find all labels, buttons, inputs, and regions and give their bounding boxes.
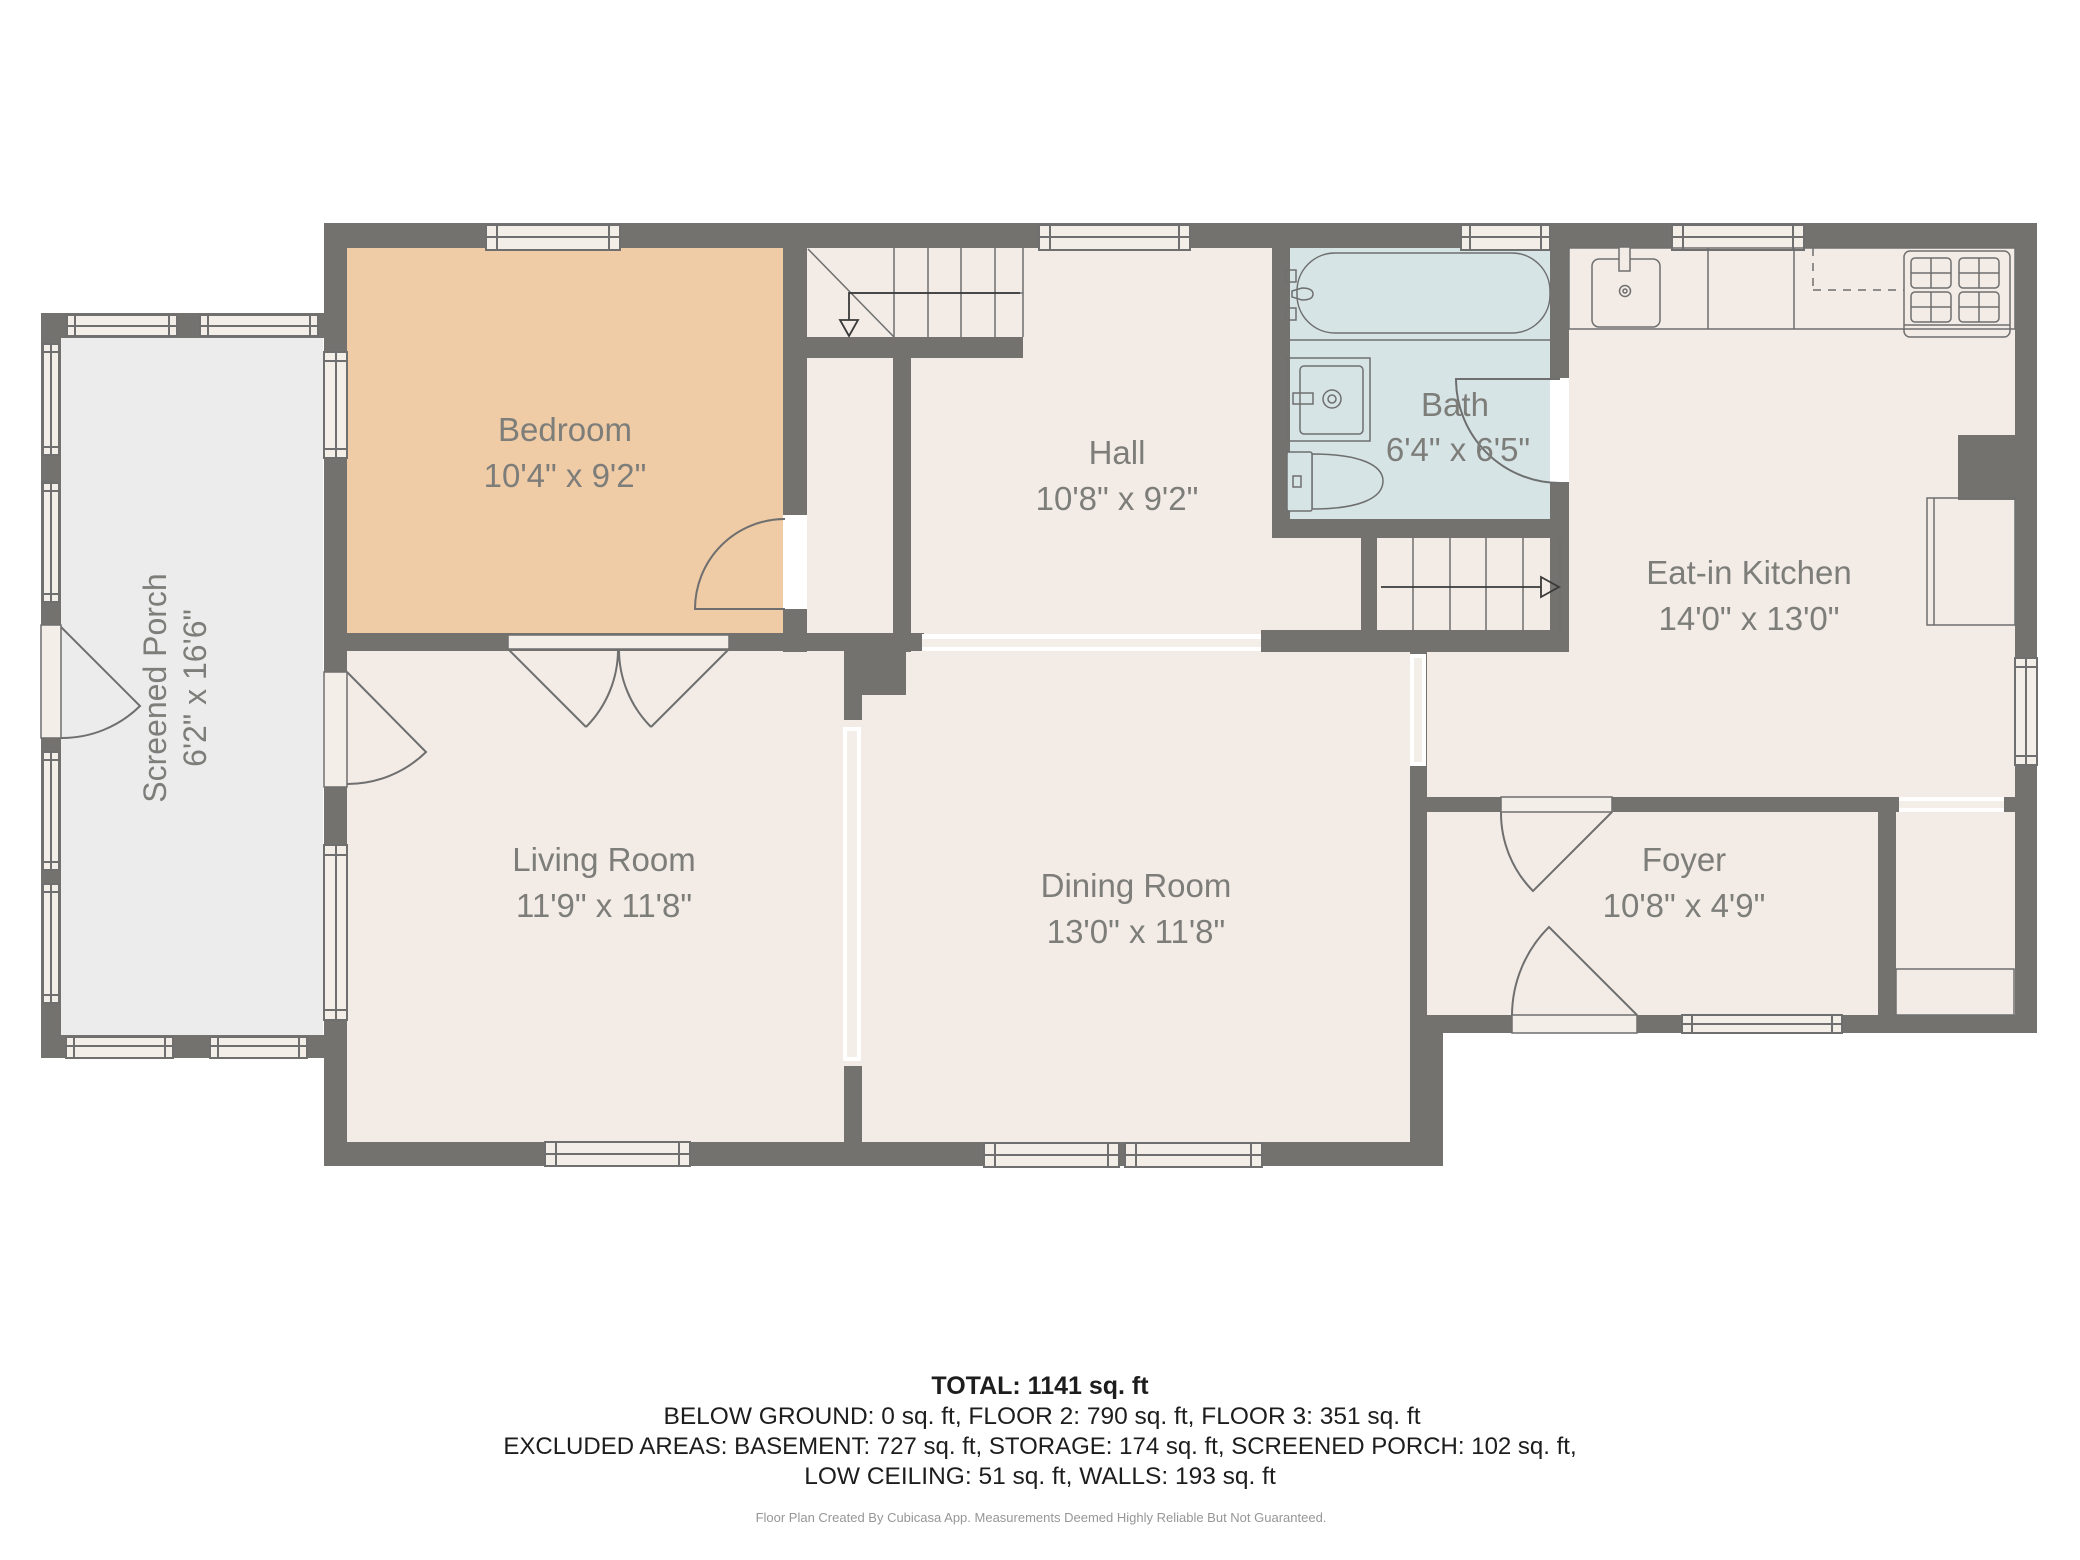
svg-text:10'4" x 9'2": 10'4" x 9'2" [484, 457, 647, 494]
svg-text:6'4" x 6'5": 6'4" x 6'5" [1386, 431, 1530, 468]
svg-text:BELOW GROUND: 0 sq. ft, FLOOR: BELOW GROUND: 0 sq. ft, FLOOR 2: 790 sq.… [663, 1403, 1420, 1430]
svg-text:LOW CEILING: 51 sq. ft, WALLS:: LOW CEILING: 51 sq. ft, WALLS: 193 sq. f… [804, 1463, 1276, 1490]
svg-text:Dining Room: Dining Room [1041, 867, 1232, 904]
svg-text:Bedroom: Bedroom [498, 411, 632, 448]
svg-text:TOTAL: 1141 sq. ft: TOTAL: 1141 sq. ft [931, 1372, 1149, 1400]
svg-text:6'2" x 16'6": 6'2" x 16'6" [177, 609, 213, 767]
svg-text:11'9" x 11'8": 11'9" x 11'8" [516, 887, 692, 924]
svg-text:Hall: Hall [1089, 434, 1146, 471]
svg-text:13'0" x 11'8": 13'0" x 11'8" [1047, 913, 1226, 950]
svg-text:10'8" x 4'9": 10'8" x 4'9" [1603, 887, 1766, 924]
svg-text:Screened Porch: Screened Porch [137, 573, 173, 802]
svg-text:Living Room: Living Room [512, 841, 695, 878]
svg-text:Floor Plan Created By Cubicasa: Floor Plan Created By Cubicasa App. Meas… [756, 1510, 1327, 1525]
svg-text:Bath: Bath [1421, 386, 1489, 423]
svg-text:EXCLUDED AREAS: BASEMENT: 727: EXCLUDED AREAS: BASEMENT: 727 sq. ft, ST… [503, 1433, 1576, 1460]
svg-text:Foyer: Foyer [1642, 841, 1726, 878]
svg-text:14'0" x 13'0": 14'0" x 13'0" [1659, 600, 1840, 637]
svg-text:10'8" x 9'2": 10'8" x 9'2" [1036, 480, 1199, 517]
svg-text:Eat-in Kitchen: Eat-in Kitchen [1646, 554, 1851, 591]
